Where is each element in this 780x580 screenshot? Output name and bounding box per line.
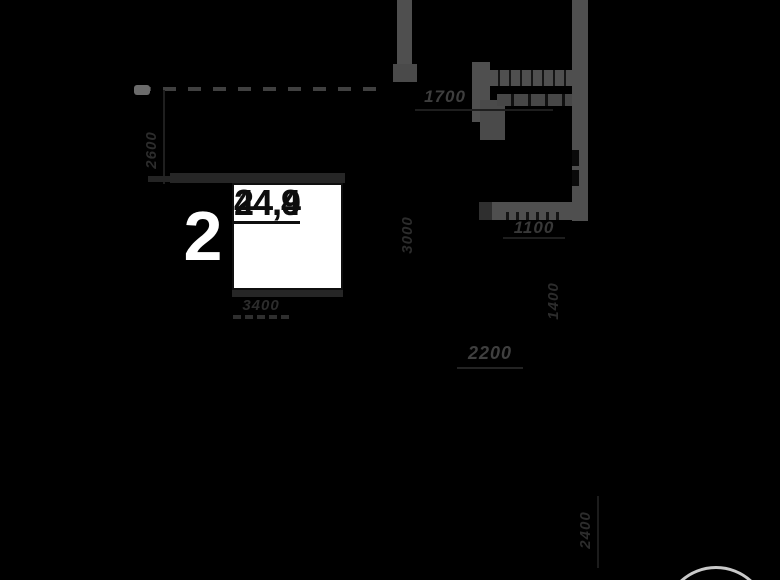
dim-label-hall-height: 3000 [399,205,417,265]
dashed-line-start-mark [134,85,150,95]
dim-label-inner-height: 1400 [545,271,563,331]
floor-plan-image[interactable]: 1700 1100 2200 3400 2600 3000 1400 2400 … [0,0,780,580]
door-opening-notch [572,170,579,186]
dimension-line [415,109,553,111]
dimension-line [503,237,565,239]
hatch-marks-below-plaque [233,315,291,319]
door-opening-notch [572,150,579,166]
top-wall-pillar-foot [393,64,417,82]
total-area-value: 44,4 [234,185,300,221]
loggia-wall-block [480,100,505,140]
dim-label-loggia-window: 1100 [506,219,562,237]
dimension-line [457,367,523,369]
dim-label-lower-right-height: 2400 [577,500,595,560]
loggia-bottom-wall-cap [479,202,492,220]
right-outer-wall [572,0,588,221]
area-plaque: 24,9 44,4 [232,183,343,290]
dim-label-under-plaque: 3400 [234,297,288,315]
loggia-inner-window-band [497,94,577,106]
watermark-circle [663,566,769,580]
dim-label-middle-width: 2200 [459,344,521,362]
wall-below-plaque [232,290,343,297]
dimension-line [597,496,599,568]
rooms-count-label: 2 [180,206,226,266]
left-dimension-line [163,90,165,184]
top-wall-pillar [397,0,412,68]
dim-label-left-wall: 2600 [143,120,161,180]
dashed-wall-line [138,87,384,91]
dim-label-top-window: 1700 [416,88,474,106]
